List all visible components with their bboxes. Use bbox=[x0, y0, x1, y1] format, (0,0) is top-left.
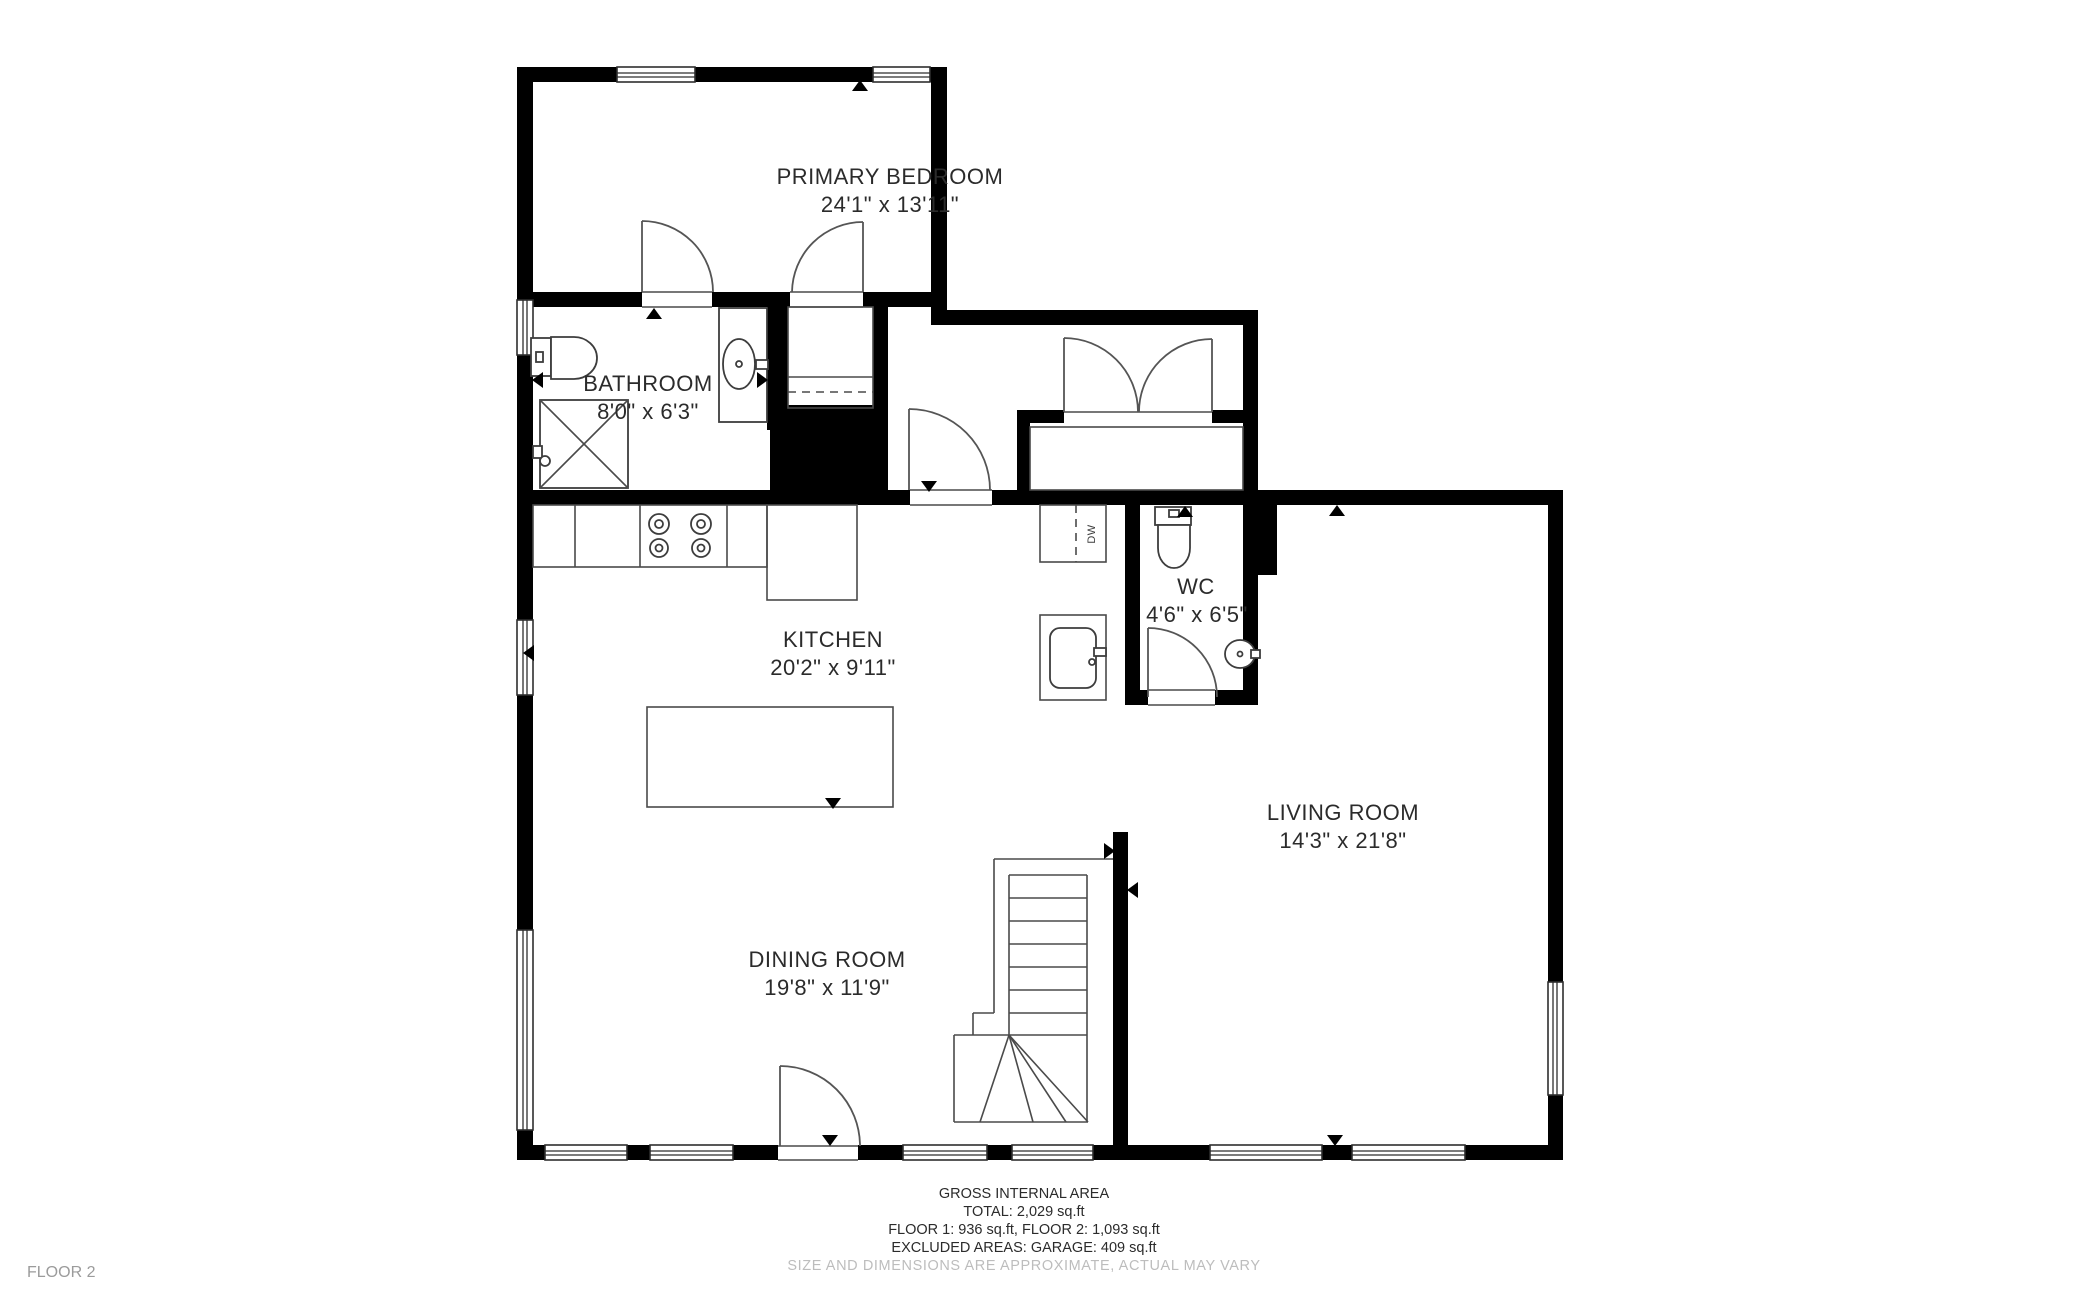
staircase bbox=[954, 859, 1113, 1122]
french-doors-hall-closet bbox=[1064, 338, 1212, 412]
room-dims-bathroom: 8'0" x 6'3" bbox=[597, 399, 699, 424]
room-dims-living-room: 14'3" x 21'8" bbox=[1279, 828, 1406, 853]
kitchen-island bbox=[647, 707, 893, 807]
window-bedroom-top-2 bbox=[873, 67, 930, 82]
window-bedroom-top-1 bbox=[617, 67, 695, 82]
fridge-icon bbox=[767, 505, 857, 600]
room-label-living-room: LIVING ROOM bbox=[1267, 800, 1419, 825]
window-living-bottom-2 bbox=[1352, 1145, 1465, 1160]
floor-plan-drawing: DW bbox=[0, 0, 2080, 1299]
room-label-kitchen: KITCHEN bbox=[783, 627, 883, 652]
door-hall-kitchen bbox=[909, 409, 992, 505]
room-dims-dining-room: 19'8" x 11'9" bbox=[764, 975, 890, 1000]
room-dims-primary-bedroom: 24'1" x 13'11" bbox=[821, 192, 959, 217]
dishwasher-label: DW bbox=[1086, 524, 1098, 543]
marker-up-icon bbox=[1329, 505, 1345, 516]
dishwasher-icon: DW bbox=[1040, 505, 1106, 562]
room-label-wc: WC bbox=[1177, 574, 1215, 599]
door-wc bbox=[1148, 628, 1217, 705]
footer-title: GROSS INTERNAL AREA bbox=[939, 1186, 1110, 1202]
window-dining-bottom-1 bbox=[545, 1145, 627, 1160]
footer-excluded: EXCLUDED AREAS: GARAGE: 409 sq.ft bbox=[891, 1240, 1156, 1256]
door-bedroom-bathroom bbox=[642, 221, 713, 307]
window-stairs-bottom-1 bbox=[903, 1145, 987, 1160]
footer-floors: FLOOR 1: 936 sq.ft, FLOOR 2: 1,093 sq.ft bbox=[888, 1222, 1160, 1238]
marker-down-icon bbox=[822, 1135, 838, 1146]
room-label-bathroom: BATHROOM bbox=[583, 371, 712, 396]
room-dims-wc: 4'6" x 6'5" bbox=[1146, 602, 1248, 627]
floor-label: FLOOR 2 bbox=[27, 1264, 96, 1281]
bedroom-closet bbox=[788, 307, 873, 408]
stove-icon bbox=[649, 514, 711, 557]
hall-closet bbox=[1030, 427, 1243, 490]
window-dining-bottom-2 bbox=[650, 1145, 733, 1160]
walls bbox=[517, 67, 1563, 1160]
window-dining-left bbox=[517, 930, 533, 1130]
bathroom-sink-icon bbox=[719, 308, 768, 422]
marker-up-icon bbox=[646, 308, 662, 319]
kitchen-counter bbox=[533, 505, 767, 567]
room-dims-kitchen: 20'2" x 9'11" bbox=[770, 655, 896, 680]
bathroom-fixtures bbox=[531, 308, 768, 488]
door-bedroom-closet bbox=[790, 222, 863, 307]
footer-area-summary: GROSS INTERNAL AREA TOTAL: 2,029 sq.ft F… bbox=[787, 1186, 1260, 1274]
windows bbox=[517, 67, 1563, 1160]
room-label-dining-room: DINING ROOM bbox=[748, 947, 905, 972]
room-label-primary-bedroom: PRIMARY BEDROOM bbox=[777, 164, 1004, 189]
footer-disclaimer: SIZE AND DIMENSIONS ARE APPROXIMATE, ACT… bbox=[787, 1258, 1260, 1274]
kitchen-sink-icon bbox=[1040, 615, 1106, 700]
marker-left-icon bbox=[1127, 882, 1138, 898]
window-stairs-bottom-2 bbox=[1012, 1145, 1093, 1160]
window-living-bottom-1 bbox=[1210, 1145, 1322, 1160]
floor-plan-page: DW bbox=[0, 0, 2080, 1299]
room-labels: PRIMARY BEDROOM 24'1" x 13'11" BATHROOM … bbox=[583, 164, 1419, 1000]
footer-total: TOTAL: 2,029 sq.ft bbox=[963, 1204, 1084, 1220]
marker-down-icon bbox=[1327, 1135, 1343, 1146]
window-living-right bbox=[1548, 982, 1563, 1095]
door-dining-exterior bbox=[778, 1066, 860, 1160]
